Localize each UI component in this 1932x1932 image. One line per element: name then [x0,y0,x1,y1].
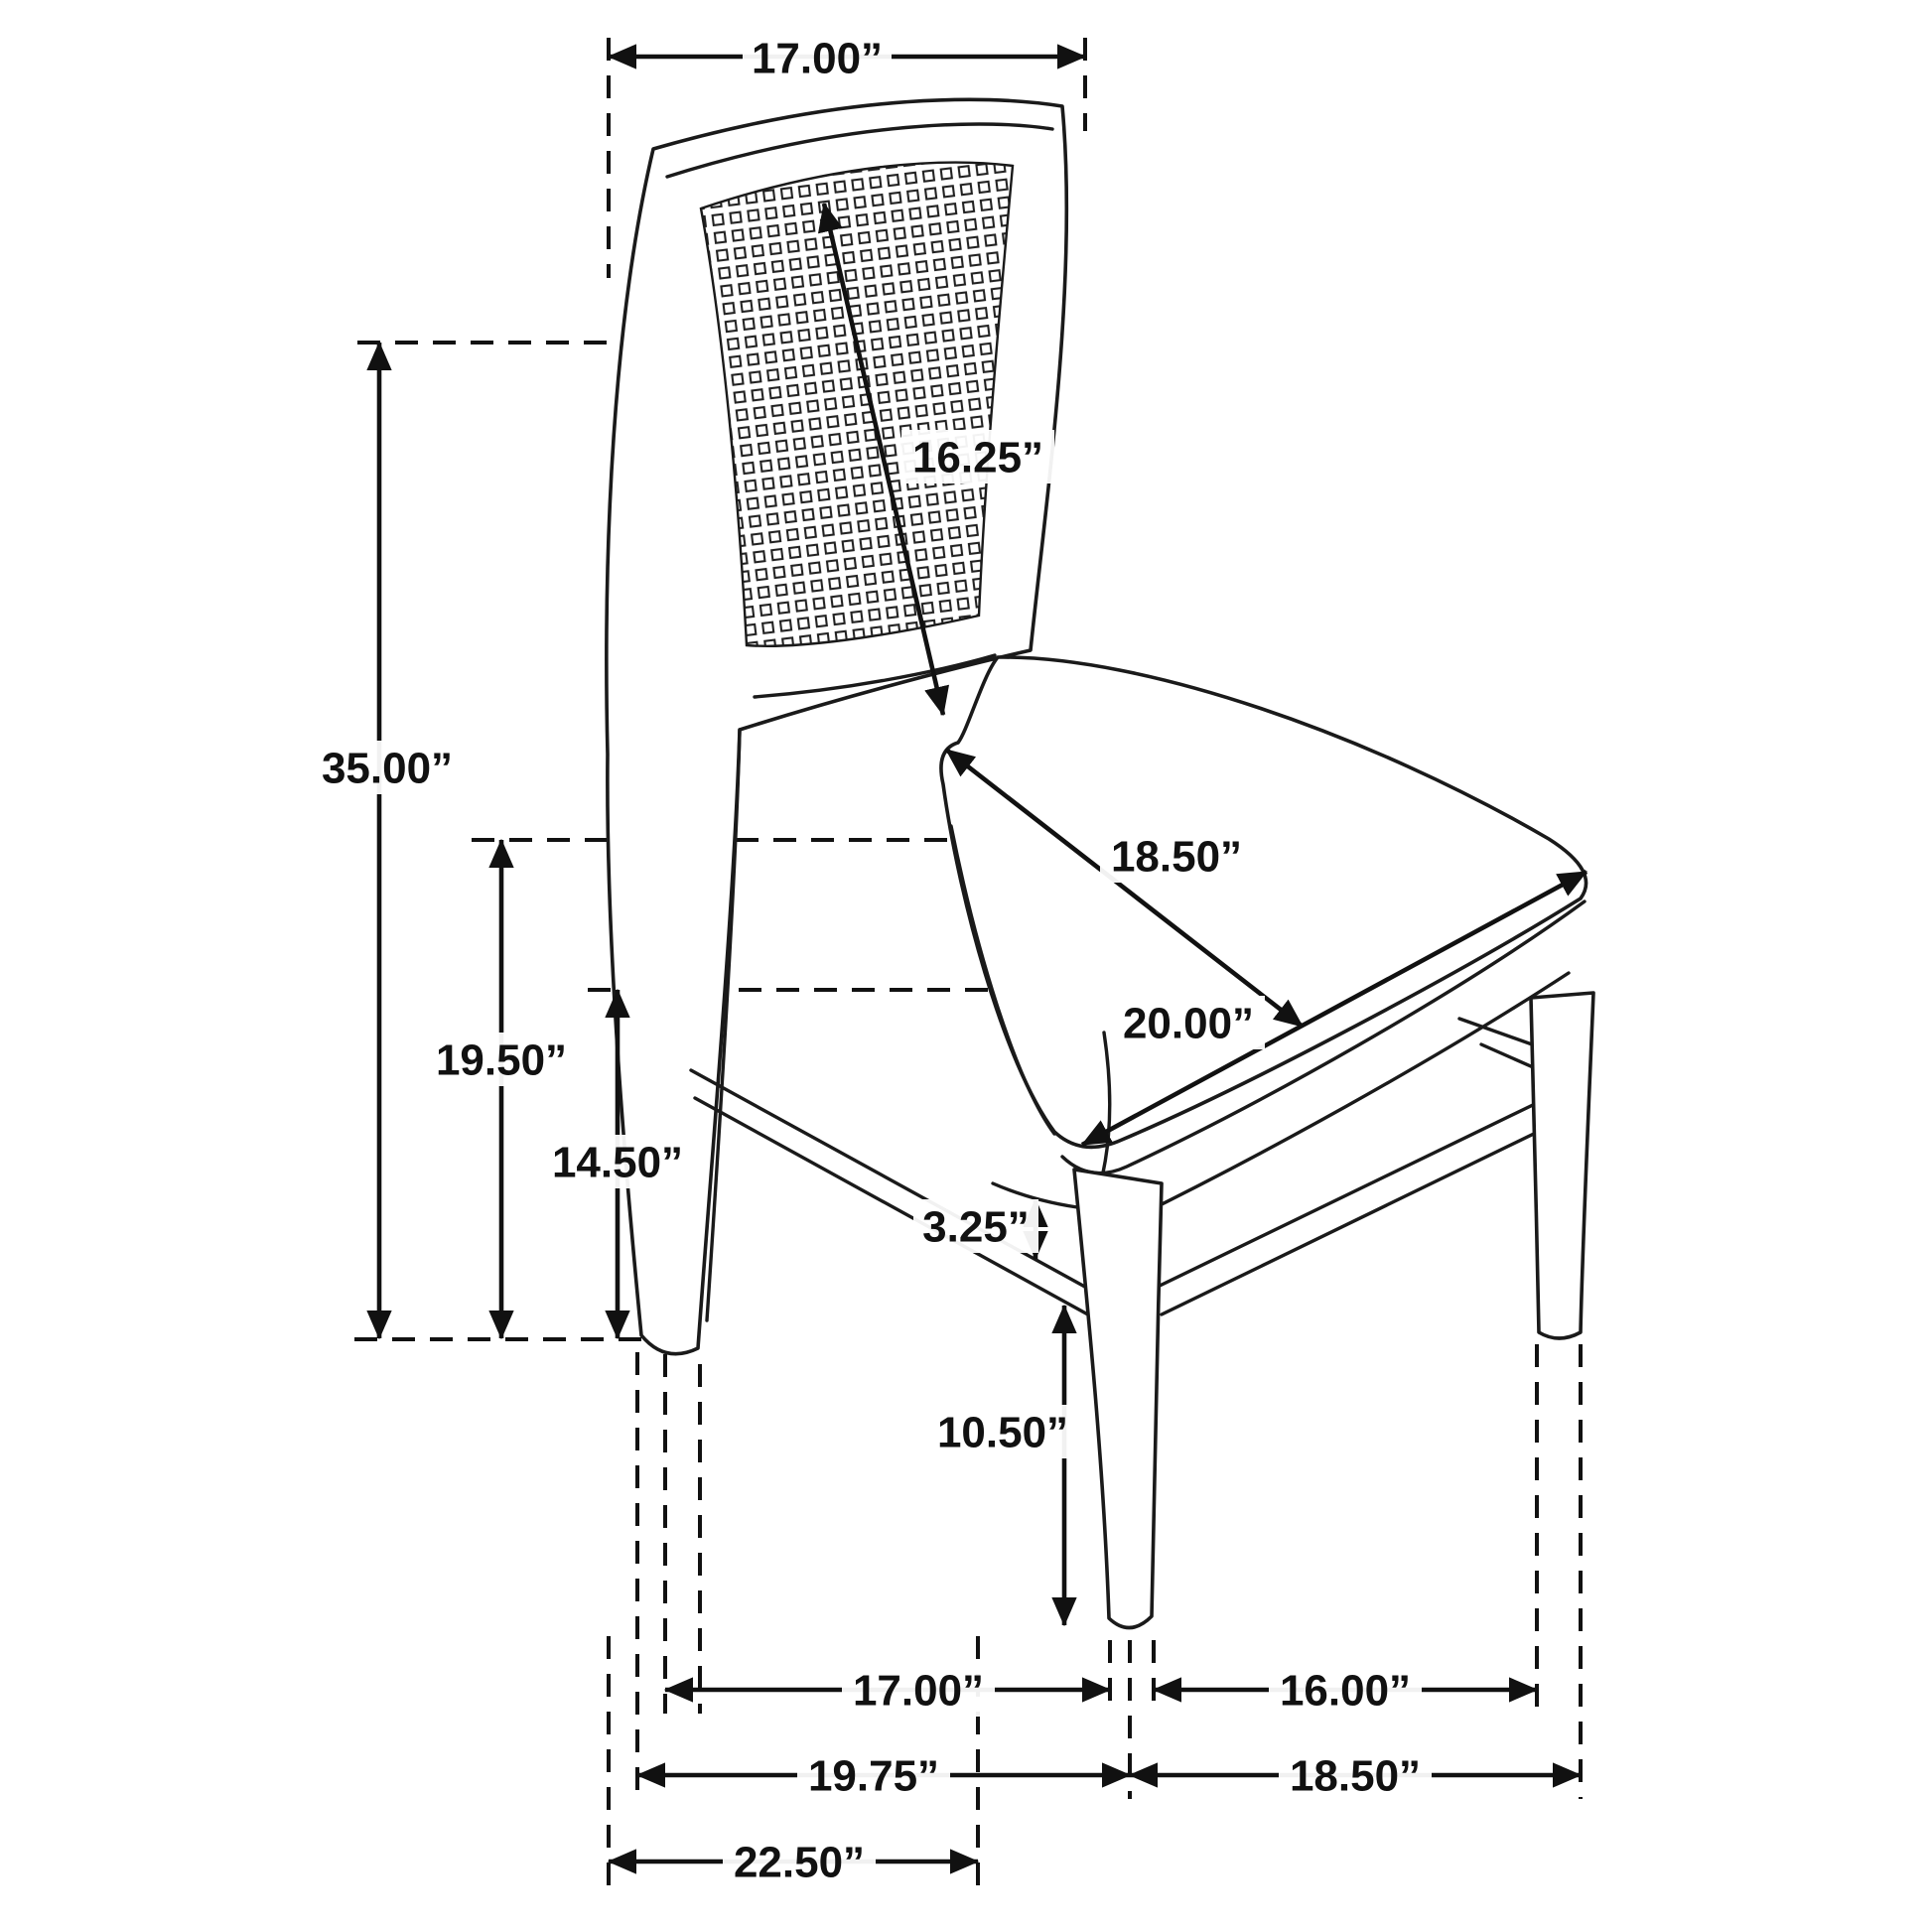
dim-back-panel-height-label: 16.25” [912,433,1043,482]
front-left-leg [1074,1170,1162,1628]
front-stretcher-top [1158,1104,1535,1287]
dim-seat-depth-label: 18.50” [1111,832,1242,881]
dim-footprint-depth-label: 19.75” [808,1751,939,1800]
dim-apron-gap-label: 3.25” [922,1202,1030,1251]
dim-overall-depth-label: 22.50” [734,1838,865,1886]
dim-seat-height-label: 19.50” [436,1035,567,1084]
dim-underside-height-label: 14.50” [552,1138,683,1186]
dim-footprint-width-label: 18.50” [1290,1751,1421,1800]
dim-overall-height-label: 35.00” [322,744,453,792]
chair-dimension-diagram: 17.00” 16.25” 35.00” 19.50” 14.50” 18.50… [0,0,1932,1932]
dim-seat-width-label: 20.00” [1123,999,1254,1047]
side-stretcher-top [691,1070,1092,1291]
dim-front-foot-spacing-label: 16.00” [1280,1666,1411,1715]
front-right-leg [1531,993,1593,1338]
dim-side-foot-spacing-label: 17.00” [853,1666,984,1715]
dim-back-width-label: 17.00” [752,34,883,82]
seat-cushion [941,657,1587,1147]
front-stretcher-bottom [1162,1132,1538,1314]
dim-leg-lower-label: 10.50” [937,1408,1068,1456]
chair-line-art [607,99,1593,1627]
cane-mesh-panel [701,163,1013,646]
diagram-canvas: 17.00” 16.25” 35.00” 19.50” 14.50” 18.50… [0,0,1932,1932]
